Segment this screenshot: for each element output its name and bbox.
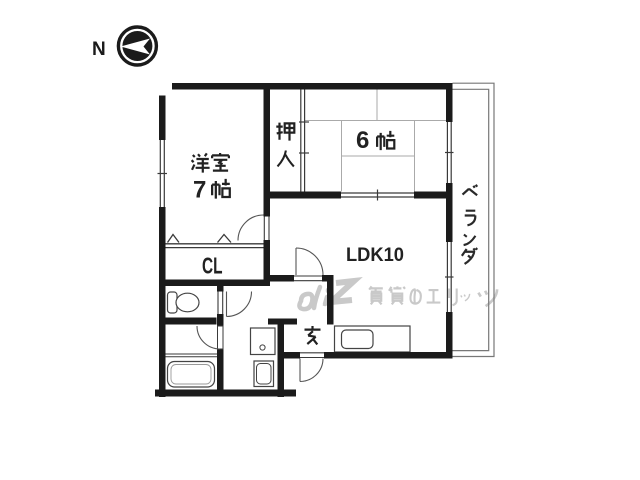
svg-text:7: 7 (193, 177, 206, 204)
svg-text:N: N (92, 39, 106, 60)
svg-text:6: 6 (356, 127, 369, 154)
svg-text:LDK10: LDK10 (346, 244, 404, 266)
svg-text:CL: CL (202, 253, 223, 279)
